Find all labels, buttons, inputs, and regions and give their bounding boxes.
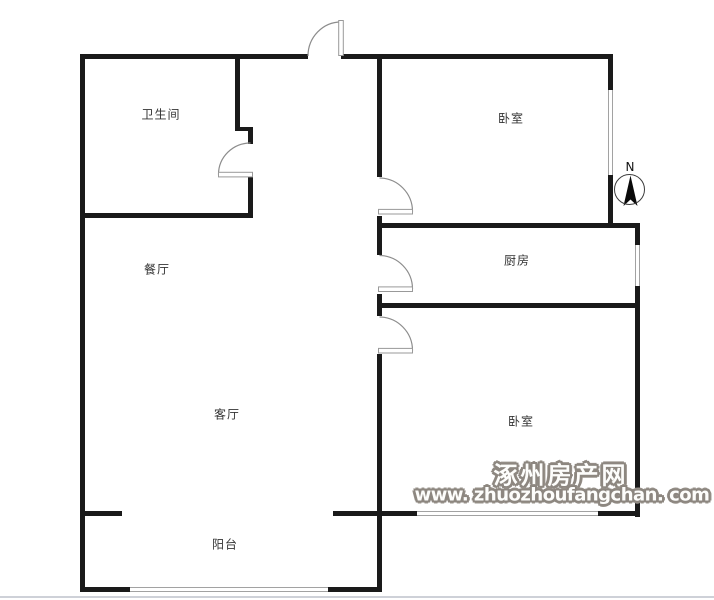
room-label-kitchen: 厨房 bbox=[504, 252, 530, 269]
wall-bathroom-right-mid bbox=[248, 131, 253, 144]
wall-outer-right-lower bbox=[635, 286, 640, 517]
entrance-door bbox=[308, 21, 343, 57]
floor-plan: N 卫生间 卧室 餐厅 厨房 客厅 卧室 阳台 涿州房产网 www. zhuoz… bbox=[0, 0, 714, 600]
wall-bedroomtop-right-upper bbox=[608, 54, 613, 90]
page-bottom-divider bbox=[0, 596, 714, 598]
wall-top-left-segment bbox=[80, 54, 308, 59]
wall-balcony-bottom-right bbox=[328, 587, 382, 592]
wall-kitchen-bottom bbox=[377, 303, 640, 308]
room-label-bathroom: 卫生间 bbox=[141, 106, 180, 123]
room-label-bedroom-top: 卧室 bbox=[498, 110, 524, 127]
bedroom-bottom-door bbox=[379, 317, 413, 353]
wall-center-segment-1 bbox=[377, 54, 382, 177]
wall-kitchen-top bbox=[377, 223, 640, 228]
wall-bathroom-right-upper bbox=[235, 54, 240, 131]
door-layer bbox=[0, 0, 714, 600]
wall-kitchen-right-upper bbox=[635, 223, 640, 245]
wall-center-segment-4 bbox=[377, 354, 382, 592]
window-bedroom-top bbox=[608, 90, 613, 175]
room-label-balcony: 阳台 bbox=[212, 536, 238, 553]
wall-bedroomtop-right-lower bbox=[608, 175, 613, 225]
wall-bedroombottom-south-right bbox=[598, 511, 640, 516]
wall-balcony-separation-left bbox=[80, 511, 122, 516]
window-bedroom-bottom bbox=[417, 511, 598, 516]
wall-bathroom-right-lower bbox=[248, 174, 253, 218]
compass-north-label: N bbox=[626, 160, 635, 174]
window-kitchen bbox=[635, 245, 640, 286]
wall-center-segment-2 bbox=[377, 216, 382, 255]
kitchen-door bbox=[379, 256, 413, 292]
room-label-dining: 餐厅 bbox=[144, 261, 170, 278]
wall-bedroombottom-south-left bbox=[333, 511, 417, 516]
wall-balcony-bottom-left bbox=[80, 587, 130, 592]
wall-bathroom-bottom bbox=[80, 213, 253, 218]
watermark-site-url: www. zhuozhoufangchan. com bbox=[415, 485, 710, 506]
bathroom-door bbox=[219, 143, 253, 177]
compass-icon bbox=[614, 174, 645, 205]
room-label-living: 客厅 bbox=[214, 406, 240, 423]
bedroom-top-door bbox=[379, 178, 413, 214]
room-label-bedroom-bottom: 卧室 bbox=[508, 413, 534, 430]
window-balcony bbox=[130, 587, 328, 592]
